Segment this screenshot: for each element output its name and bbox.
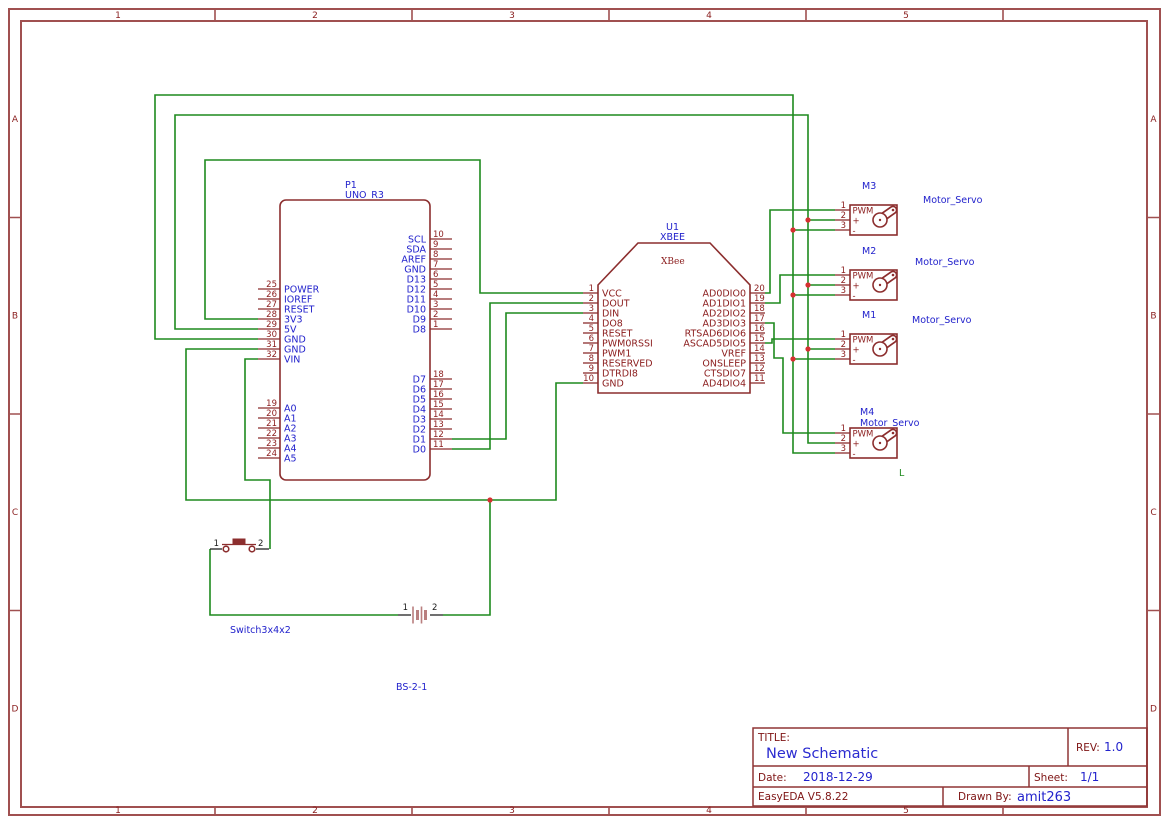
svg-text:25: 25 [266,280,277,290]
svg-text:-: - [853,450,856,460]
svg-text:2: 2 [589,294,594,304]
svg-text:14: 14 [754,344,765,354]
svg-text:10: 10 [433,230,444,240]
border-outer [9,9,1160,815]
svg-text:2: 2 [841,434,846,444]
svg-text:7: 7 [433,260,438,270]
schematic-canvas[interactable]: 12345 12345 ABCD ABCD [0,0,1169,827]
ruler-row-label: B [12,312,18,322]
component-servo-m4[interactable]: M4 Motor_Servo 1 PWM 2 + 3 - [835,407,920,460]
svg-text:+: + [853,217,860,227]
svg-text:4: 4 [589,314,594,324]
svg-text:16: 16 [754,324,765,334]
switch-contact [223,546,229,552]
svg-text:2: 2 [841,276,846,286]
component-battery[interactable]: 1 2 BS-2-1 [396,603,443,693]
svg-text:PWM: PWM [853,272,874,282]
sheet-label: Sheet: [1034,772,1068,784]
servo-ref: M2 [862,246,876,257]
svg-text:22: 22 [266,429,277,439]
svg-text:PWM: PWM [853,336,874,346]
battery-pin2-number: 2 [432,603,437,613]
svg-text:14: 14 [433,410,444,420]
svg-text:19: 19 [266,399,277,409]
svg-text:+: + [853,440,860,450]
svg-text:1: 1 [841,424,846,434]
svg-text:20: 20 [754,284,765,294]
svg-text:+: + [853,346,860,356]
schematic-title[interactable]: New Schematic [766,746,878,762]
border-inner [21,21,1147,807]
rev-label: REV: [1076,742,1100,754]
wire-d0-to-dout[interactable] [452,303,583,449]
xbee-inner-label: XBee [661,257,685,267]
svg-text:15: 15 [754,334,765,344]
svg-text:8: 8 [433,250,438,260]
component-servo-m3[interactable]: M3 Motor_Servo 1 PWM 2 + 3 - [835,181,983,237]
svg-text:8: 8 [589,354,594,364]
ruler-col-label: 3 [509,11,515,21]
svg-text:17: 17 [433,380,444,390]
svg-text:PWM: PWM [853,430,874,440]
svg-text:A5: A5 [284,454,297,465]
rev-value[interactable]: 1.0 [1104,740,1123,754]
ruler-ticks-bottom [215,807,1003,815]
date-label: Date: [758,772,787,784]
svg-text:19: 19 [754,294,765,304]
wire-m2-power-taps[interactable] [793,285,835,295]
wire-ad5-to-m1-pwm[interactable] [765,339,835,343]
ruler-row-label: C [12,508,18,518]
svg-text:1: 1 [589,284,594,294]
switch-pin2-number: 2 [258,539,263,549]
svg-text:9: 9 [589,364,594,374]
title-block: TITLE: New Schematic REV: 1.0 Date: 2018… [753,728,1147,806]
svg-text:28: 28 [266,310,277,320]
junction-dot[interactable] [790,356,795,361]
wire-ad0-to-m3-pwm[interactable] [765,210,835,293]
sheet-value[interactable]: 1/1 [1080,770,1099,784]
ruler-col-label: 2 [312,806,318,816]
svg-text:1: 1 [433,320,438,330]
svg-text:12: 12 [433,430,444,440]
svg-text:16: 16 [433,390,444,400]
net-label-l[interactable]: L [899,468,905,479]
svg-text:18: 18 [754,304,765,314]
wire-m1-power-taps[interactable] [793,349,835,359]
svg-text:6: 6 [433,270,438,280]
svg-text:13: 13 [433,420,444,430]
svg-text:5: 5 [589,324,594,334]
ruler-row-label: D [1150,705,1157,715]
svg-text:5: 5 [433,280,438,290]
svg-text:30: 30 [266,330,277,340]
servo-ref: M1 [862,310,876,321]
svg-text:3: 3 [841,350,846,360]
drawn-by-label: Drawn By: [958,791,1012,803]
svg-text:2: 2 [433,310,438,320]
ruler-col-label: 5 [903,11,909,21]
svg-text:12: 12 [754,364,765,374]
wire-battery-to-gnd[interactable] [443,500,490,615]
ruler-row-label: A [1150,115,1157,125]
svg-text:26: 26 [266,290,277,300]
drawn-by-value[interactable]: amit263 [1017,790,1071,805]
svg-text:D0: D0 [413,445,426,456]
svg-text:GND: GND [602,379,624,390]
svg-text:27: 27 [266,300,277,310]
servo-part: Motor_Servo [923,195,983,206]
svg-text:10: 10 [583,374,594,384]
junction-dot[interactable] [487,497,492,502]
svg-text:15: 15 [433,400,444,410]
junction-dot[interactable] [790,227,795,232]
svg-text:11: 11 [754,374,765,384]
ruler-row-label: A [12,115,19,125]
ruler-col-label: 4 [706,11,712,21]
ruler-col-label: 1 [115,806,121,816]
battery-label: BS-2-1 [396,682,427,693]
svg-text:3: 3 [841,221,846,231]
svg-text:3: 3 [433,300,438,310]
ruler-col-label: 5 [903,806,909,816]
svg-text:11: 11 [433,440,444,450]
date-value[interactable]: 2018-12-29 [803,770,873,784]
junction-dot[interactable] [805,282,810,287]
svg-text:21: 21 [266,419,277,429]
svg-text:31: 31 [266,340,277,350]
ruler-ticks-top [215,9,1003,21]
xbee-part: XBEE [660,232,685,243]
ruler-row-label: C [1150,508,1156,518]
svg-text:+: + [853,282,860,292]
svg-text:3: 3 [841,286,846,296]
svg-text:24: 24 [266,449,277,459]
svg-text:3: 3 [841,444,846,454]
ruler-col-label: 4 [706,806,712,816]
junction-dot[interactable] [790,292,795,297]
component-switch[interactable]: 1 2 Switch3x4x2 [210,539,291,637]
svg-text:9: 9 [433,240,438,250]
svg-text:2: 2 [841,340,846,350]
svg-text:2: 2 [841,211,846,221]
ruler-col-label: 2 [312,11,318,21]
ruler-row-label: D [12,705,19,715]
svg-text:29: 29 [266,320,277,330]
svg-text:3: 3 [589,304,594,314]
wire-m3-power-taps[interactable] [793,220,835,230]
svg-text:4: 4 [433,290,438,300]
wire-ad1-to-m2-pwm[interactable] [765,275,835,303]
svg-text:AD4DIO4: AD4DIO4 [703,379,747,390]
svg-text:PWM: PWM [853,207,874,217]
svg-text:VIN: VIN [284,355,300,366]
svg-text:7: 7 [589,344,594,354]
ruler-ticks-left [9,218,21,611]
component-uno-r3[interactable]: P1 UNO_R3 25 POWER 26 IOREF 27 RESET 28 … [258,180,452,480]
ruler-col-label: 1 [115,11,121,21]
servo-ref: M4 [860,407,874,418]
svg-text:-: - [853,227,856,237]
component-servo-m2[interactable]: M2 Motor_Servo 1 PWM 2 + 3 - [835,246,975,302]
software-version: EasyEDA V5.8.22 [758,791,848,803]
ruler-row-label: B [1150,312,1156,322]
component-xbee[interactable]: U1 XBEE XBee 1 VCC 2 DOUT 3 DIN 4 DO8 [583,222,765,393]
junction-dot[interactable] [805,346,810,351]
svg-text:1: 1 [841,201,846,211]
svg-text:20: 20 [266,409,277,419]
svg-text:-: - [853,356,856,366]
component-servo-m1[interactable]: M1 Motor_Servo 1 PWM 2 + 3 - [835,310,972,366]
svg-text:13: 13 [754,354,765,364]
svg-text:D8: D8 [413,325,426,336]
junction-dot[interactable] [805,217,810,222]
servo-part: Motor_Servo [912,315,972,326]
svg-text:1: 1 [841,266,846,276]
svg-text:17: 17 [754,314,765,324]
title-label: TITLE: [757,732,790,744]
battery-pin1-number: 1 [403,603,408,613]
switch-pin1-number: 1 [214,539,219,549]
ruler-col-label: 3 [509,806,515,816]
svg-text:32: 32 [266,350,277,360]
switch-button-cap [233,539,246,545]
switch-contact [249,546,255,552]
wire-switch-to-battery[interactable] [210,549,398,615]
ruler-ticks-right [1147,218,1160,611]
wire-d1-to-din[interactable] [452,313,583,439]
svg-text:-: - [853,292,856,302]
svg-text:6: 6 [589,334,594,344]
servo-ref: M3 [862,181,876,192]
svg-text:1: 1 [841,330,846,340]
svg-text:23: 23 [266,439,277,449]
sheet-border: 12345 12345 ABCD ABCD [9,9,1160,816]
servo-part: Motor_Servo [915,257,975,268]
svg-text:18: 18 [433,370,444,380]
switch-label: Switch3x4x2 [230,625,291,636]
